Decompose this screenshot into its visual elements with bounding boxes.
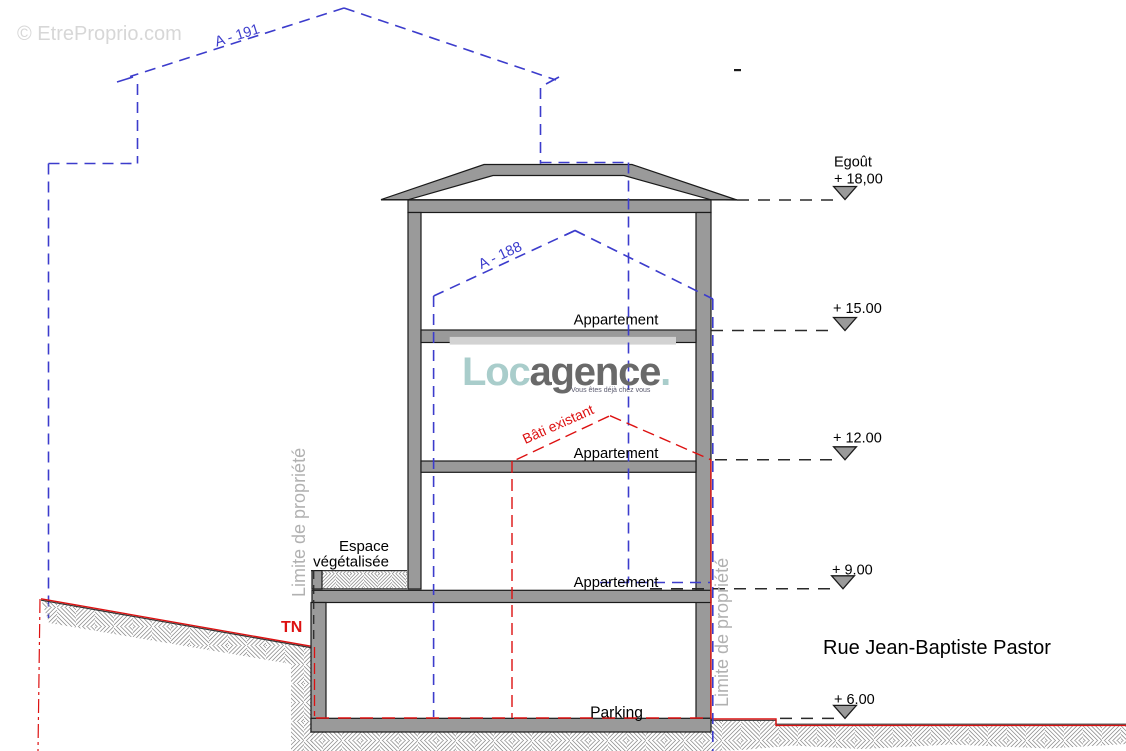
svg-text:végétalisée: végétalisée xyxy=(313,554,389,571)
svg-text:Egoût: Egoût xyxy=(834,155,872,171)
svg-text:Espace: Espace xyxy=(339,538,389,555)
svg-text:+ 18,00: + 18,00 xyxy=(834,172,883,188)
svg-text:+ 12.00: + 12.00 xyxy=(833,430,882,446)
svg-text:Rue Jean-Baptiste Pastor: Rue Jean-Baptiste Pastor xyxy=(823,637,1051,659)
svg-text:+ 9.00: + 9.00 xyxy=(832,563,873,579)
svg-text:Limite de propriété: Limite de propriété xyxy=(289,448,309,597)
svg-text:Appartement: Appartement xyxy=(574,575,659,591)
svg-text:Appartement: Appartement xyxy=(574,313,659,329)
svg-text:Vous êtes déjà chez vous: Vous êtes déjà chez vous xyxy=(571,387,651,394)
svg-text:Limite de propriété: Limite de propriété xyxy=(712,558,732,707)
svg-text:Parking: Parking xyxy=(590,705,643,722)
svg-text:+ 15.00: + 15.00 xyxy=(833,301,882,317)
svg-text:+ 6.00: + 6.00 xyxy=(834,692,875,708)
svg-text:TN: TN xyxy=(281,619,302,636)
svg-text:Appartement: Appartement xyxy=(574,446,659,462)
svg-text:© EtreProprio.com: © EtreProprio.com xyxy=(17,23,182,45)
